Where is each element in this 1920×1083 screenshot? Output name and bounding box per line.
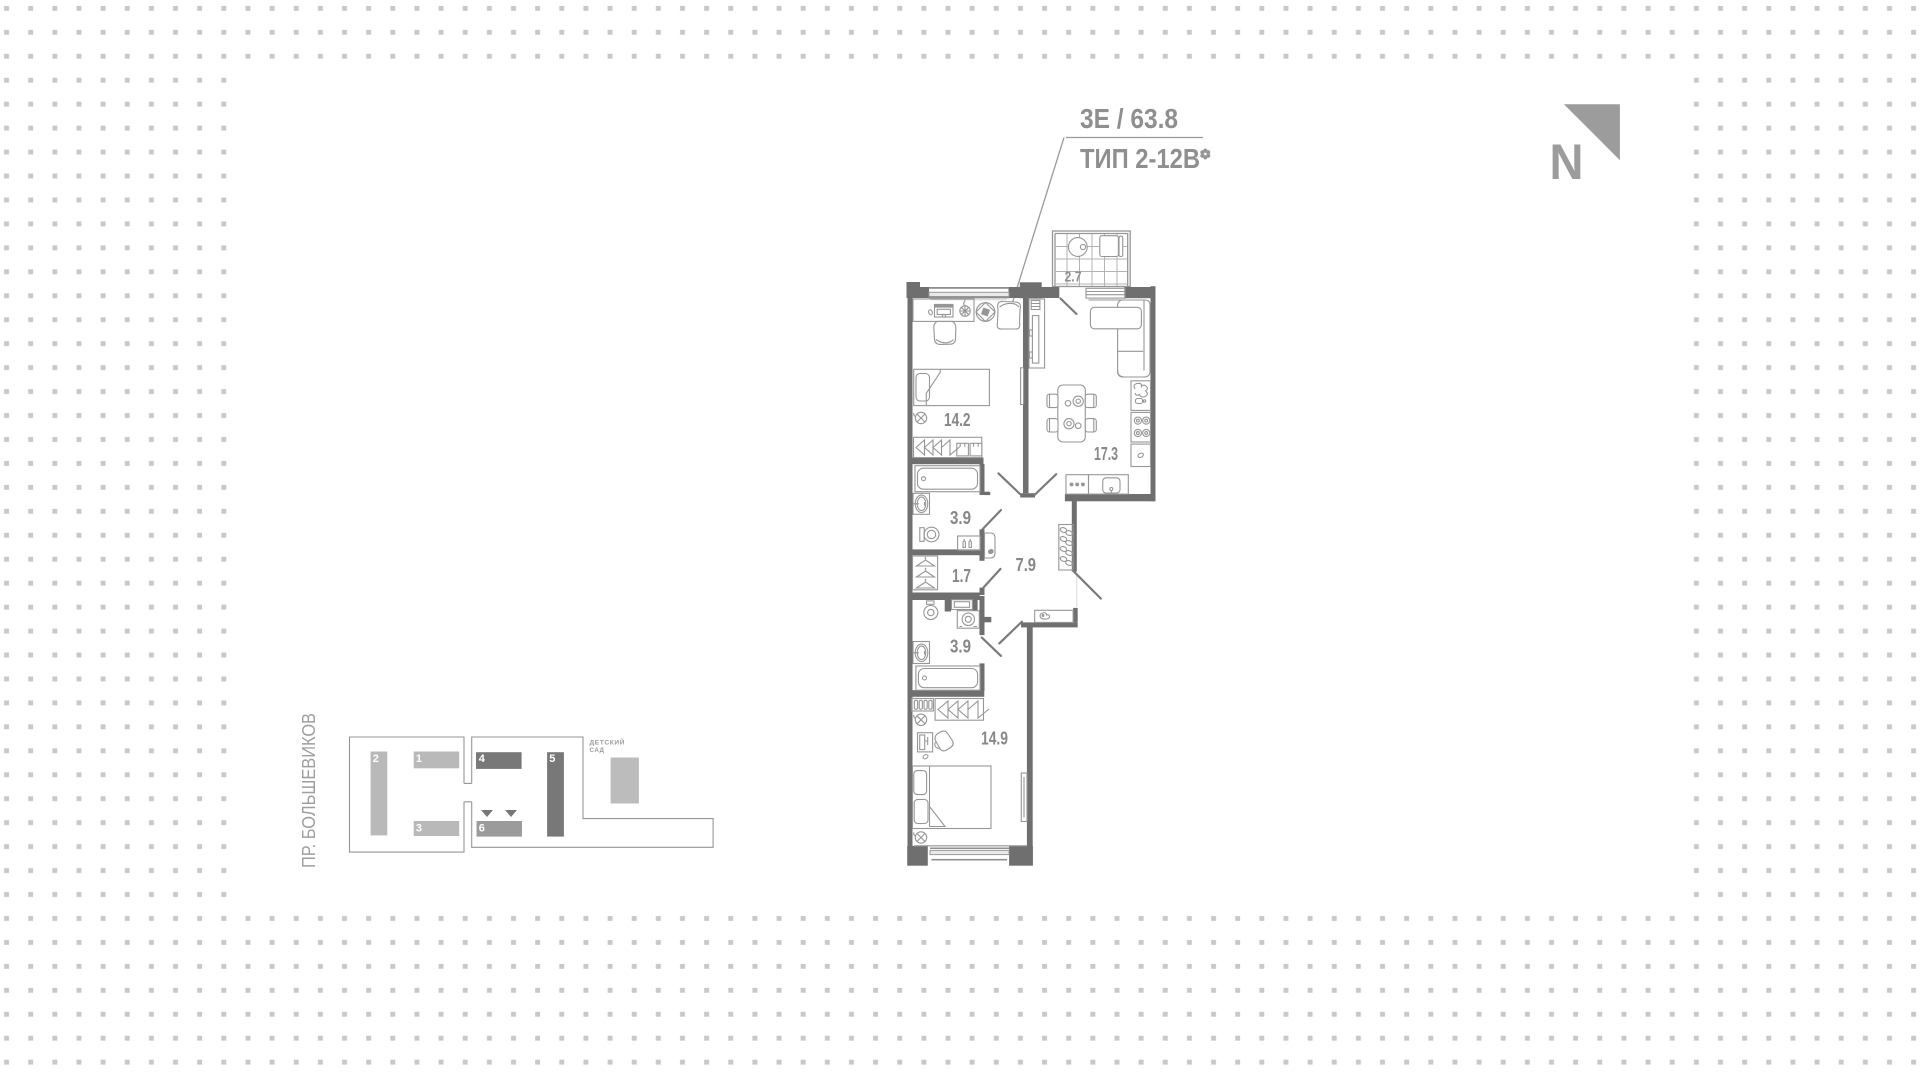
svg-text:3.9: 3.9 <box>950 636 971 657</box>
svg-text:6: 6 <box>479 822 485 834</box>
svg-text:N: N <box>1550 134 1584 190</box>
svg-text:14.9: 14.9 <box>981 728 1008 749</box>
svg-text:САД: САД <box>590 747 605 754</box>
svg-text:1: 1 <box>416 753 422 765</box>
svg-text:14.2: 14.2 <box>944 409 971 430</box>
svg-text:17.3: 17.3 <box>1094 443 1118 464</box>
svg-text:ТИП 2-12В: ТИП 2-12В <box>1080 143 1200 174</box>
svg-text:1.7: 1.7 <box>952 565 971 586</box>
svg-text:5: 5 <box>549 753 555 765</box>
svg-text:2.7: 2.7 <box>1065 269 1082 286</box>
svg-text:ДЕТСКИЙ: ДЕТСКИЙ <box>590 738 626 747</box>
svg-text:2: 2 <box>373 753 379 765</box>
svg-text:3Е / 63.8: 3Е / 63.8 <box>1080 103 1178 134</box>
svg-text:4: 4 <box>479 753 486 765</box>
svg-text:7.9: 7.9 <box>1016 554 1037 575</box>
svg-text:3.9: 3.9 <box>950 507 971 528</box>
svg-text:3: 3 <box>416 822 422 834</box>
svg-text:ПР. БОЛЬШЕВИКОВ: ПР. БОЛЬШЕВИКОВ <box>299 713 319 868</box>
